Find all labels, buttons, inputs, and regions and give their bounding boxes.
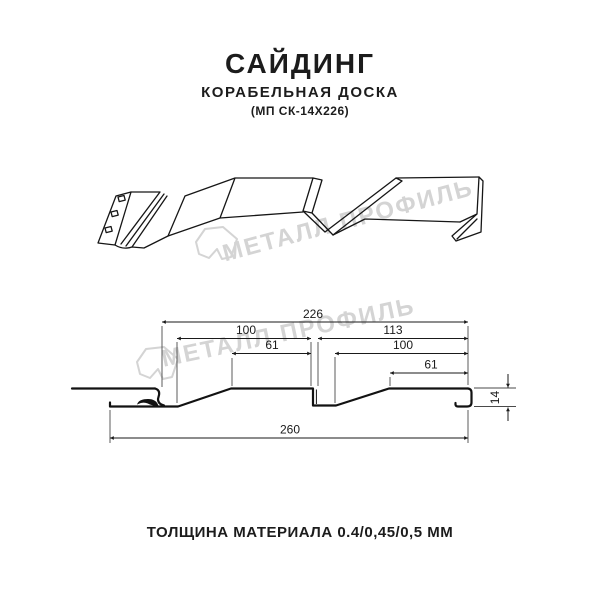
dimension-label: 100 (393, 338, 413, 352)
material-thickness-note: ТОЛЩИНА МАТЕРИАЛА 0.4/0,45/0,5 ММ (0, 524, 600, 541)
dimension-label: 260 (280, 423, 300, 437)
dimension-label: 226 (303, 307, 323, 321)
dimension-label: 100 (236, 323, 256, 337)
dimension-260: 260 (110, 423, 468, 439)
dimension-14: 14 (488, 374, 508, 421)
watermark-cross-section: МЕТАЛЛ ПРОФИЛЬ (137, 293, 418, 379)
dimension-label: 61 (424, 358, 438, 372)
dimension-100-right: 100 (335, 338, 468, 354)
profile-outline (110, 389, 468, 407)
dimension-label: 113 (383, 323, 402, 337)
dimension-label: 14 (488, 391, 502, 405)
dimension-226: 226 (162, 307, 468, 322)
dimension-61-right: 61 (390, 358, 468, 374)
flange-holes (105, 196, 125, 233)
watermark-text: МЕТАЛЛ ПРОФИЛЬ (159, 293, 418, 373)
lock-hook-curl (138, 400, 158, 407)
right-edge-curl (455, 389, 471, 407)
technical-drawing: МЕТАЛЛ ПРОФИЛЬ МЕТАЛЛ ПРОФИЛЬ (0, 0, 600, 600)
dimension-label: 61 (265, 338, 279, 352)
product-sheet: САЙДИНГ КОРАБЕЛЬНАЯ ДОСКА (МП СК-14Х226)… (0, 0, 600, 600)
